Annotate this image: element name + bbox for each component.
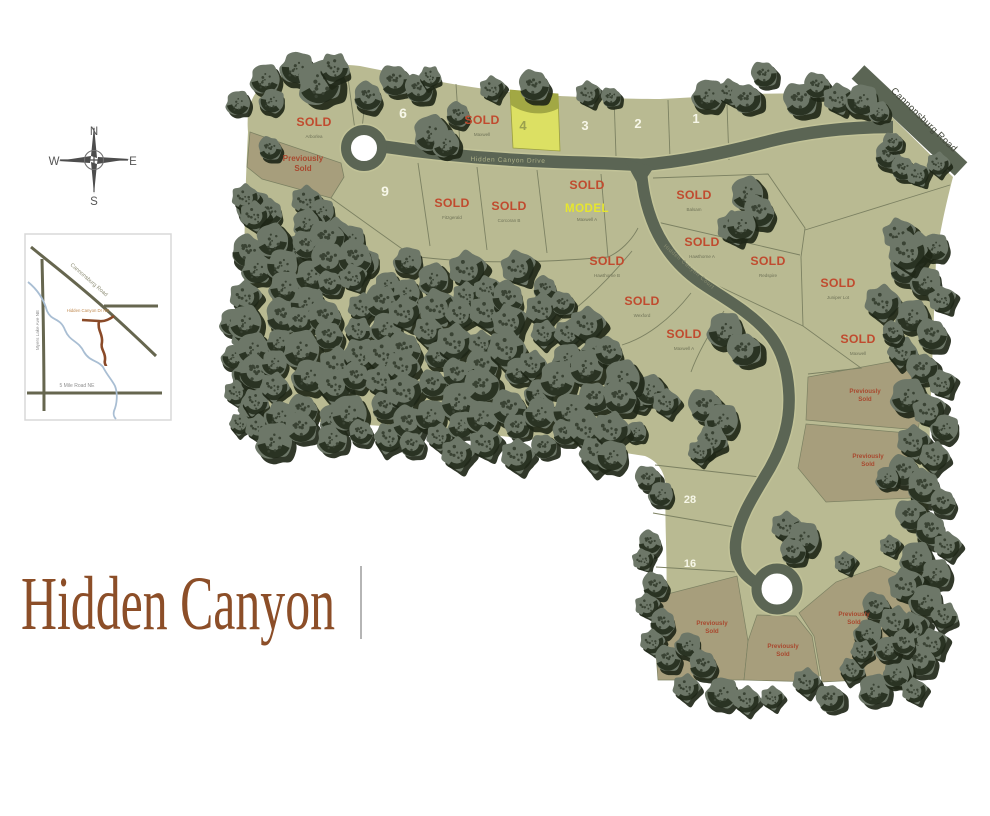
svg-text:SOLD: SOLD xyxy=(624,294,659,308)
svg-text:S: S xyxy=(90,196,98,208)
svg-text:SOLD: SOLD xyxy=(750,254,785,268)
svg-text:Hawthorne A: Hawthorne A xyxy=(689,254,715,259)
svg-text:SOLD: SOLD xyxy=(589,254,624,268)
svg-text:6: 6 xyxy=(399,105,407,121)
svg-text:SOLD: SOLD xyxy=(684,235,719,249)
svg-text:Redspire: Redspire xyxy=(759,273,778,278)
svg-text:Myers Lake Ave NE: Myers Lake Ave NE xyxy=(35,310,40,350)
svg-text:Maxwell A: Maxwell A xyxy=(674,346,694,351)
svg-text:Sold: Sold xyxy=(847,619,861,626)
svg-text:Maxwell: Maxwell xyxy=(850,351,866,356)
svg-text:9: 9 xyxy=(381,183,389,199)
svg-text:28: 28 xyxy=(684,494,696,506)
svg-text:N: N xyxy=(90,126,98,138)
svg-text:Wexford: Wexford xyxy=(634,313,651,318)
svg-text:SOLD: SOLD xyxy=(434,196,469,210)
svg-text:Previously: Previously xyxy=(849,388,881,395)
svg-text:SOLD: SOLD xyxy=(296,115,331,129)
svg-text:Hawthorne B: Hawthorne B xyxy=(594,273,620,278)
svg-text:SOLD: SOLD xyxy=(676,188,711,202)
svg-text:Corcoran B: Corcoran B xyxy=(498,218,521,223)
svg-text:1: 1 xyxy=(692,111,699,126)
svg-text:SOLD: SOLD xyxy=(464,113,499,127)
svg-text:16: 16 xyxy=(684,558,696,570)
svg-text:SOLD: SOLD xyxy=(491,199,526,213)
svg-text:Sold: Sold xyxy=(858,396,872,403)
svg-text:Fitzgerald: Fitzgerald xyxy=(442,215,462,220)
svg-text:5 Mile Road NE: 5 Mile Road NE xyxy=(59,383,95,389)
svg-text:Sold: Sold xyxy=(294,164,311,173)
svg-text:Maxwell A: Maxwell A xyxy=(577,217,597,222)
svg-text:Hidden Canyon Dr NE: Hidden Canyon Dr NE xyxy=(67,308,110,313)
svg-text:3: 3 xyxy=(581,118,588,133)
svg-text:E: E xyxy=(129,156,137,168)
svg-text:Maxwell: Maxwell xyxy=(474,132,490,137)
svg-text:Balsam: Balsam xyxy=(686,207,701,212)
svg-text:SOLD: SOLD xyxy=(666,327,701,341)
svg-text:2: 2 xyxy=(634,116,641,131)
svg-text:Hidden Canyon: Hidden Canyon xyxy=(21,562,335,646)
svg-text:Sold: Sold xyxy=(705,628,719,635)
svg-text:Previously: Previously xyxy=(852,453,884,460)
svg-text:Sold: Sold xyxy=(776,651,790,658)
svg-text:Previously: Previously xyxy=(838,611,870,618)
svg-text:Previously: Previously xyxy=(767,643,799,650)
svg-text:MODEL: MODEL xyxy=(565,203,609,215)
svg-text:4: 4 xyxy=(519,118,527,133)
svg-text:Previously: Previously xyxy=(283,154,324,163)
svg-text:Previously: Previously xyxy=(696,620,728,627)
svg-text:SOLD: SOLD xyxy=(820,276,855,290)
svg-text:SOLD: SOLD xyxy=(840,332,875,346)
svg-text:Arborlea: Arborlea xyxy=(305,134,323,139)
svg-text:Juniper Lot: Juniper Lot xyxy=(827,295,850,300)
svg-text:SOLD: SOLD xyxy=(569,178,604,192)
svg-text:W: W xyxy=(49,156,60,168)
svg-text:Sold: Sold xyxy=(861,461,875,468)
